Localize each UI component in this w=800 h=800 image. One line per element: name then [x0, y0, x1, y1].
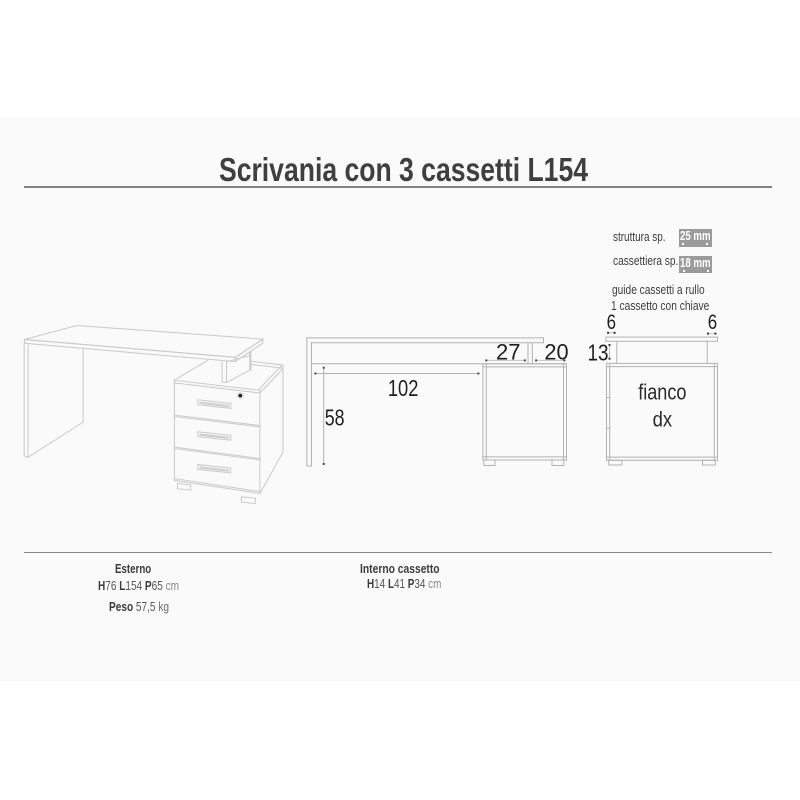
svg-text:6: 6 [708, 311, 717, 334]
svg-text:fianco: fianco [638, 379, 686, 404]
svg-text:102: 102 [388, 375, 419, 401]
svg-text:dx: dx [653, 408, 673, 431]
svg-text:13: 13 [588, 340, 609, 366]
svg-text:20: 20 [544, 340, 568, 365]
svg-text:58: 58 [325, 404, 345, 430]
svg-text:27: 27 [496, 340, 521, 365]
svg-text:6: 6 [607, 311, 616, 334]
